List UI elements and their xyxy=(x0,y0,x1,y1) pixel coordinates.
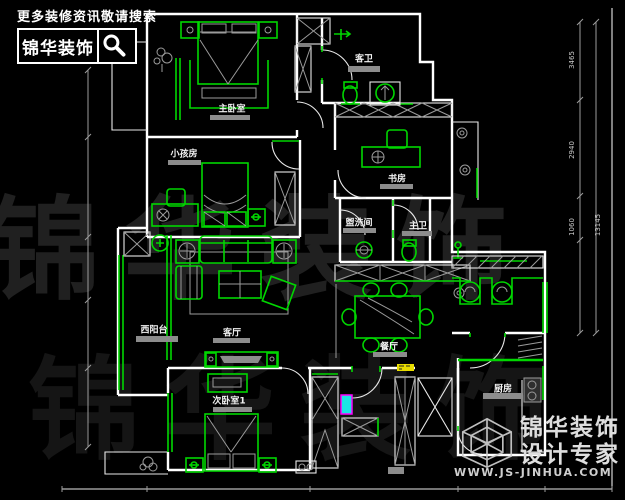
jinhua-watermark: 锦华装饰 设计专家 WWW.JS-JINHUA.COM xyxy=(450,406,624,486)
room-label-west-balcony: 西阳台 xyxy=(140,323,167,336)
yellow-entry-badge xyxy=(397,364,414,371)
bar-counter xyxy=(452,256,543,304)
logo-divider xyxy=(97,30,99,62)
logo-box: 锦华装饰 xyxy=(17,28,137,64)
dim-right-2: 2940 xyxy=(568,141,576,159)
room-label-bedroom-1: 次卧室1 xyxy=(212,394,245,407)
room-label-guest-bath: 客卫 xyxy=(355,52,373,65)
corridor-objects xyxy=(341,364,414,474)
logo-text: 锦华装饰 xyxy=(19,34,97,59)
floorplan-canvas: 锦华装饰 锦华装饰 xyxy=(0,0,625,500)
room-label-washroom: 盥洗间 xyxy=(345,216,372,229)
dining-furniture xyxy=(342,283,464,352)
windows xyxy=(119,58,547,452)
dim-right-3: 1060 xyxy=(568,218,576,236)
room-label-dining-room: 餐厅 xyxy=(380,340,398,353)
room-label-study: 书房 xyxy=(388,172,406,185)
jinhua-cube-logo xyxy=(458,416,516,470)
kids-room-furniture xyxy=(152,163,295,227)
room-label-master-bath: 主卫 xyxy=(409,219,427,232)
study-furniture xyxy=(362,128,470,175)
jinhua-search-logo: 更多装修资讯敬请搜索 锦华装饰 xyxy=(17,6,157,64)
niche-plant xyxy=(140,457,157,471)
dim-right-total: 13145 xyxy=(594,214,602,236)
room-label-kids-room: 小孩房 xyxy=(170,147,197,160)
stair-shaft xyxy=(395,377,415,465)
living-room-furniture xyxy=(124,232,296,367)
search-icon xyxy=(101,33,127,59)
cyan-column-highlight xyxy=(341,395,352,414)
elevator-shaft xyxy=(418,378,452,436)
room-label-kitchen: 厨房 xyxy=(494,382,512,395)
room-label-master-bedroom: 主卧室 xyxy=(218,102,245,115)
washroom-fixtures xyxy=(356,240,463,261)
bedroom1-furniture xyxy=(140,374,338,473)
study-plants xyxy=(457,128,470,175)
dim-right-1: 3465 xyxy=(568,51,576,69)
search-prompt-text: 更多装修资讯敬请搜索 xyxy=(17,6,157,25)
room-label-living-room: 客厅 xyxy=(223,326,241,339)
watermark-website: WWW.JS-JINHUA.COM xyxy=(454,466,612,479)
watermark-tagline: 设计专家 xyxy=(520,435,620,469)
